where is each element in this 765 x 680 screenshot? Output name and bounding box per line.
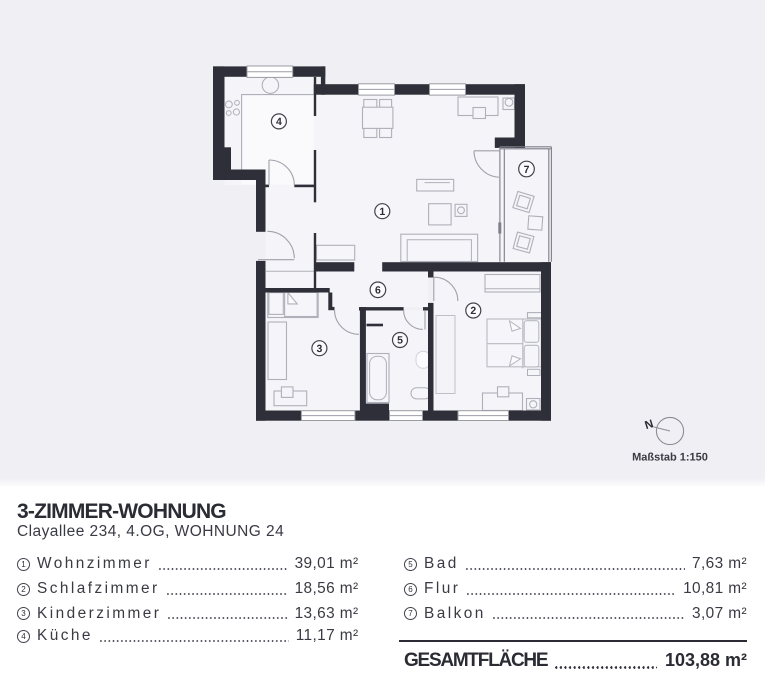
svg-text:Maßstab 1:150: Maßstab 1:150 <box>632 452 708 464</box>
svg-text:7: 7 <box>524 164 530 176</box>
svg-text:1: 1 <box>379 206 385 218</box>
svg-text:3: 3 <box>316 343 322 355</box>
svg-text:2: 2 <box>470 305 476 317</box>
svg-text:N: N <box>644 418 655 432</box>
svg-text:5: 5 <box>397 335 403 347</box>
svg-text:6: 6 <box>375 285 381 297</box>
svg-text:4: 4 <box>276 116 282 128</box>
